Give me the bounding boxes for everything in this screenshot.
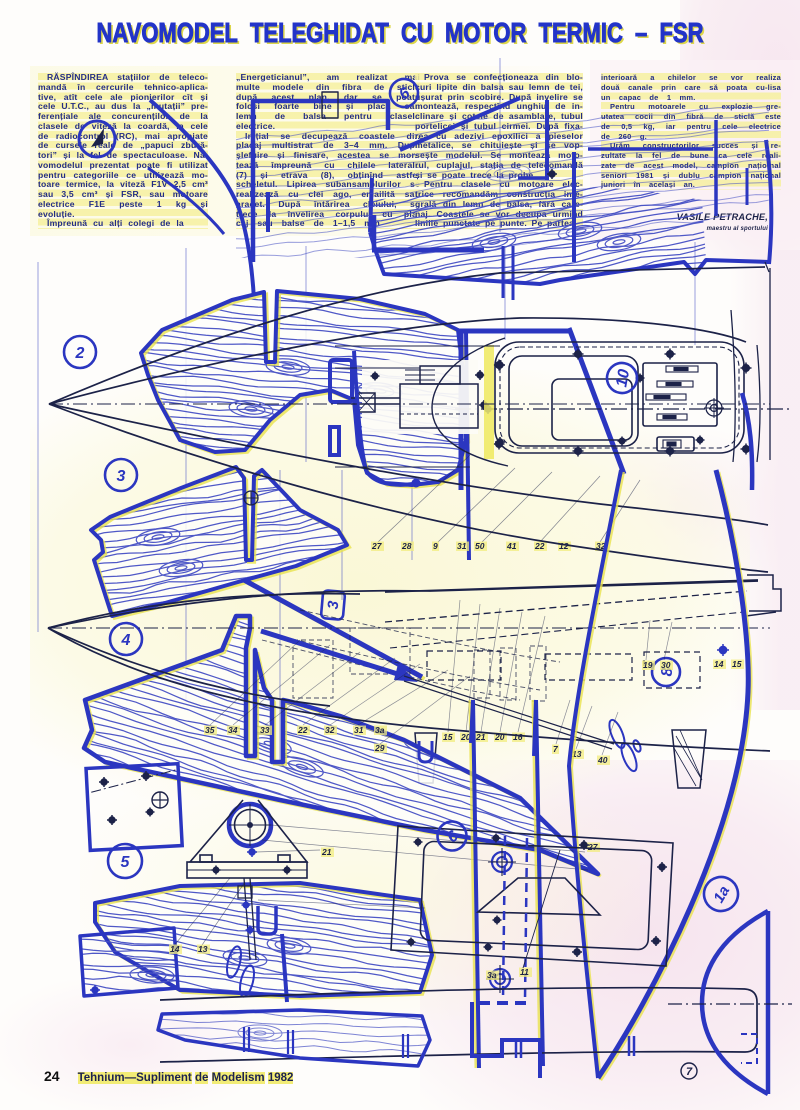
svg-text:9: 9 — [433, 541, 438, 551]
svg-text:14: 14 — [714, 659, 724, 669]
svg-text:15: 15 — [443, 732, 453, 742]
svg-text:5: 5 — [121, 854, 131, 871]
svg-text:29: 29 — [374, 743, 385, 753]
svg-text:1a: 1a — [710, 883, 733, 906]
svg-text:3a: 3a — [375, 725, 385, 735]
svg-text:31: 31 — [354, 725, 364, 735]
svg-text:3: 3 — [117, 468, 126, 485]
svg-text:31: 31 — [457, 541, 467, 551]
svg-text:50: 50 — [475, 541, 485, 551]
svg-text:32: 32 — [325, 725, 335, 735]
svg-text:4: 4 — [121, 632, 131, 649]
svg-text:40: 40 — [597, 755, 608, 765]
svg-text:14: 14 — [170, 944, 180, 954]
svg-text:35: 35 — [205, 725, 215, 735]
svg-text:2: 2 — [75, 345, 85, 362]
svg-text:7: 7 — [686, 1066, 693, 1078]
svg-text:19: 19 — [643, 660, 653, 670]
svg-text:33: 33 — [260, 725, 270, 735]
svg-text:41: 41 — [506, 541, 517, 551]
svg-text:27: 27 — [587, 842, 599, 852]
svg-text:27: 27 — [371, 541, 383, 551]
svg-text:13: 13 — [198, 944, 208, 954]
svg-text:22: 22 — [534, 541, 545, 551]
svg-text:21: 21 — [321, 847, 332, 857]
svg-text:12: 12 — [559, 541, 569, 551]
svg-text:10: 10 — [613, 368, 633, 389]
svg-text:11: 11 — [520, 967, 529, 977]
svg-text:3a: 3a — [487, 970, 497, 980]
svg-text:3: 3 — [325, 599, 343, 609]
svg-text:15: 15 — [732, 659, 742, 669]
svg-text:16: 16 — [513, 732, 523, 742]
svg-text:28: 28 — [401, 541, 412, 551]
svg-text:30: 30 — [661, 660, 671, 670]
svg-text:21: 21 — [475, 732, 486, 742]
svg-text:6: 6 — [396, 84, 413, 103]
svg-text:22: 22 — [297, 725, 308, 735]
svg-text:34: 34 — [228, 725, 238, 735]
